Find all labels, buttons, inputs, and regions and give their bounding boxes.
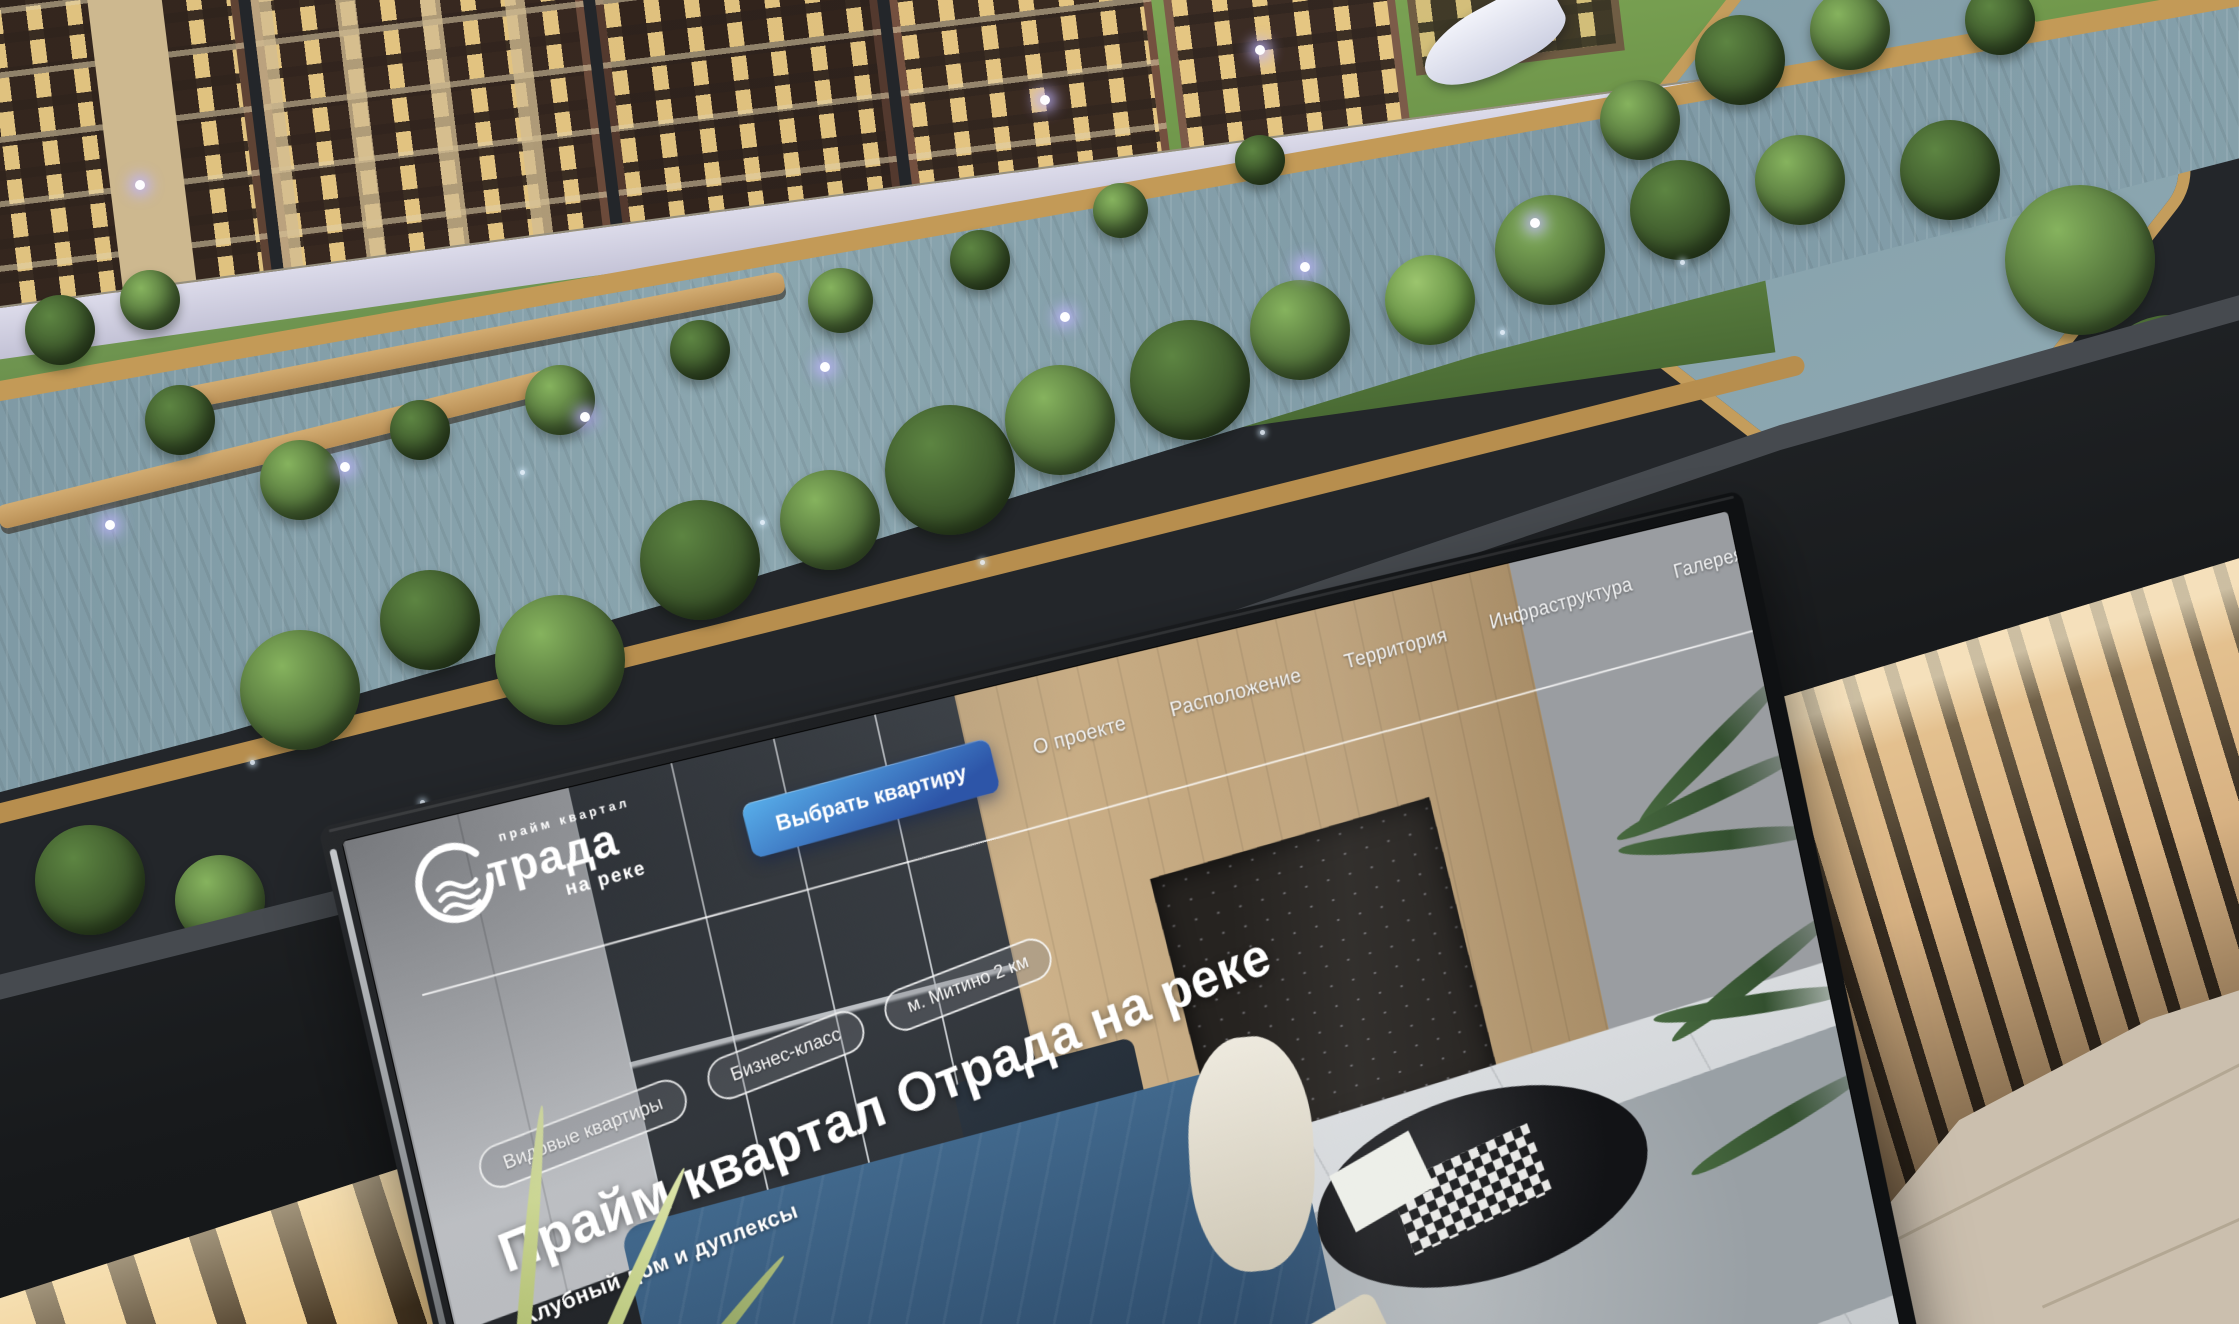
model-tree [25, 295, 95, 365]
model-tree [260, 440, 340, 520]
floor-tile-joint [2042, 1200, 2239, 1308]
model-tree [885, 405, 1015, 535]
model-street-lamp [820, 362, 830, 372]
model-tree [1250, 280, 1350, 380]
model-tree [1900, 120, 2000, 220]
model-tree [390, 400, 450, 460]
model-tree [1005, 365, 1115, 475]
model-tree [120, 270, 180, 330]
water-sparkle [1260, 430, 1265, 435]
model-street-lamp [1530, 218, 1540, 228]
model-tree [2005, 185, 2155, 335]
showroom-photo: прайм квартал трада на реке Выбрать квар… [0, 0, 2239, 1324]
water-sparkle [250, 760, 255, 765]
nav-about[interactable]: О проекте [1030, 711, 1128, 760]
model-street-lamp [1300, 262, 1310, 272]
model-street-lamp [340, 462, 350, 472]
model-street-lamp [135, 180, 145, 190]
water-sparkle [980, 560, 985, 565]
model-tree [670, 320, 730, 380]
model-tree [640, 500, 760, 620]
model-tree [780, 470, 880, 570]
water-sparkle [1500, 330, 1505, 335]
model-tree [808, 268, 873, 333]
plant-leaf [1633, 663, 1794, 831]
model-tree [35, 825, 145, 935]
water-sparkle [1680, 260, 1685, 265]
model-street-lamp [1060, 312, 1070, 322]
model-tree [1130, 320, 1250, 440]
model-tree [1600, 80, 1680, 160]
nav-territory[interactable]: Территория [1342, 623, 1450, 675]
model-tree [1385, 255, 1475, 345]
model-tree [240, 630, 360, 750]
model-street-lamp [1255, 45, 1265, 55]
model-tree [145, 385, 215, 455]
model-tree [380, 570, 480, 670]
model-tree [950, 230, 1010, 290]
model-tree [1235, 135, 1285, 185]
model-tree [1093, 183, 1148, 238]
water-sparkle [760, 520, 765, 525]
model-street-lamp [105, 520, 115, 530]
model-street-lamp [1040, 95, 1050, 105]
model-tree [495, 595, 625, 725]
model-tree [1695, 15, 1785, 105]
model-street-lamp [580, 412, 590, 422]
model-tree [1630, 160, 1730, 260]
nav-gallery[interactable]: Галерея [1671, 542, 1746, 584]
nav-infrastructure[interactable]: Инфраструктура [1487, 572, 1635, 634]
plant-leaf [1688, 1059, 1876, 1183]
model-tree [1495, 195, 1605, 305]
palm-frond [516, 1251, 789, 1324]
model-tree [1755, 135, 1845, 225]
model-tree [525, 365, 595, 435]
plant-leaf [1667, 902, 1843, 1049]
water-sparkle [520, 470, 525, 475]
